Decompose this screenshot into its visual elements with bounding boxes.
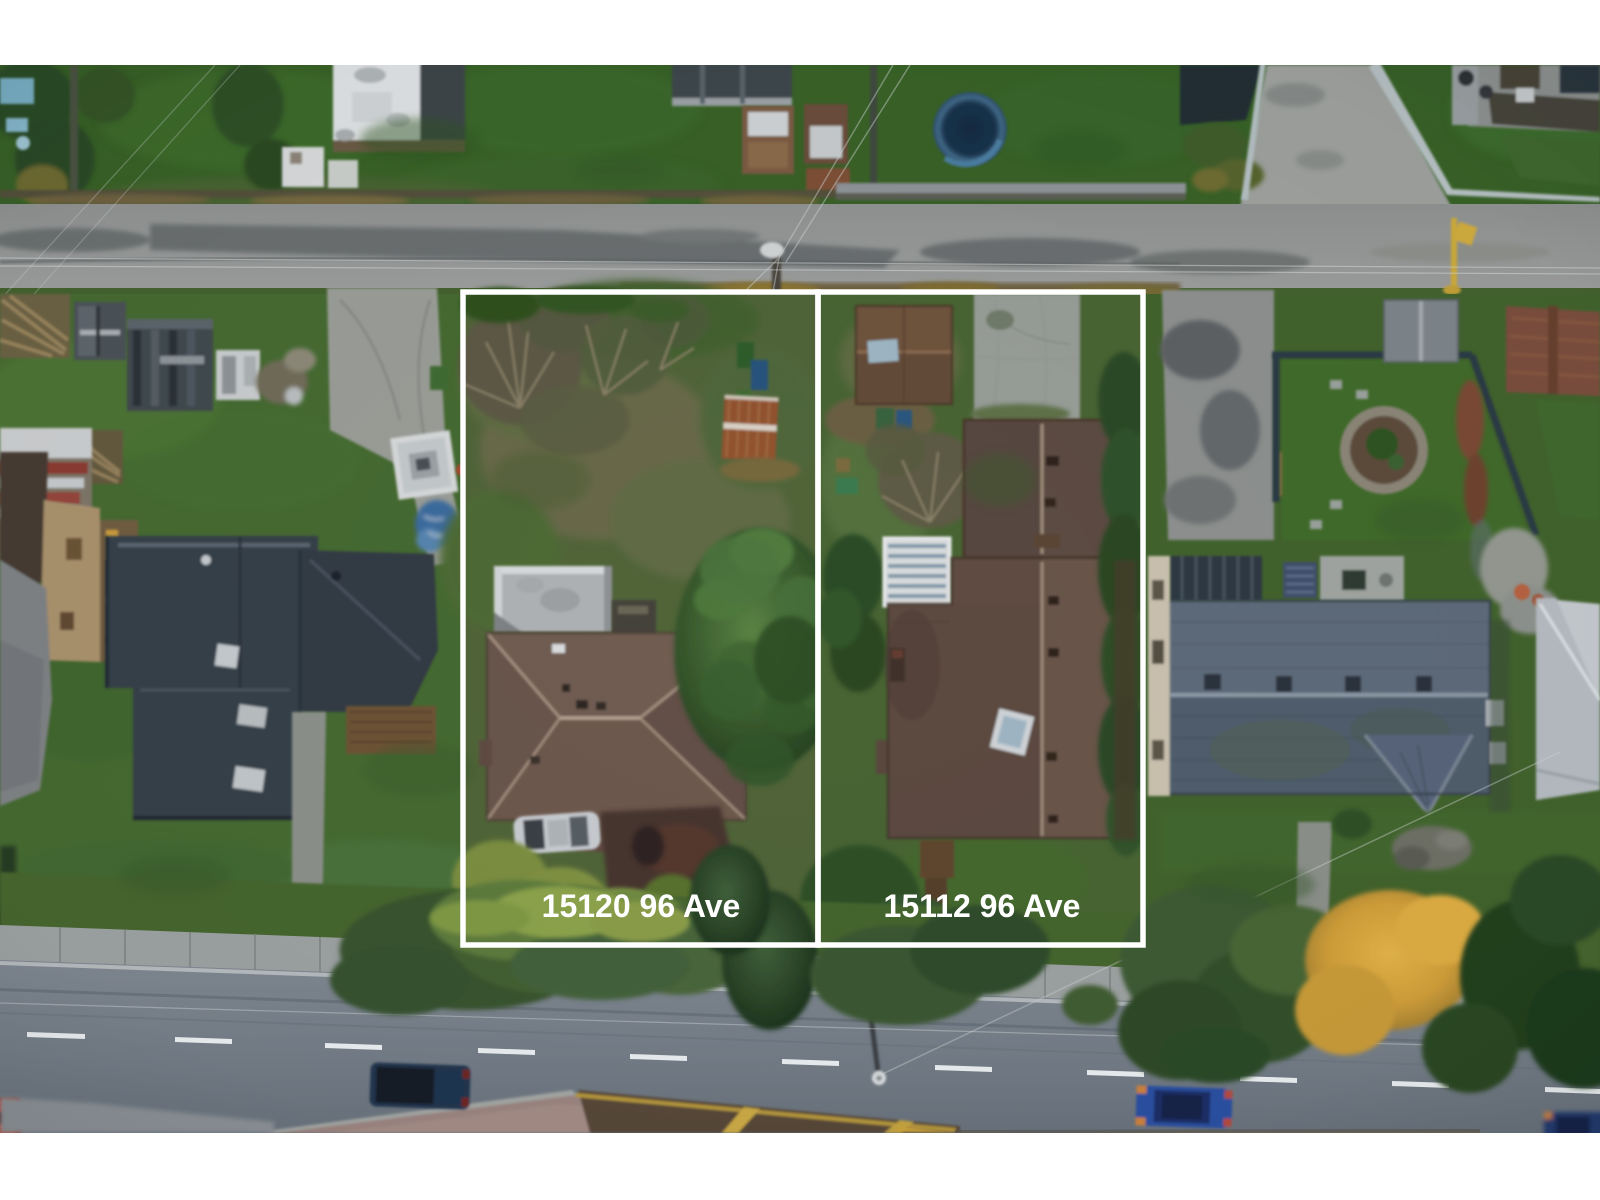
svg-text:15120 96 Ave: 15120 96 Ave bbox=[542, 888, 741, 924]
svg-text:15112 96 Ave: 15112 96 Ave bbox=[884, 888, 1081, 924]
